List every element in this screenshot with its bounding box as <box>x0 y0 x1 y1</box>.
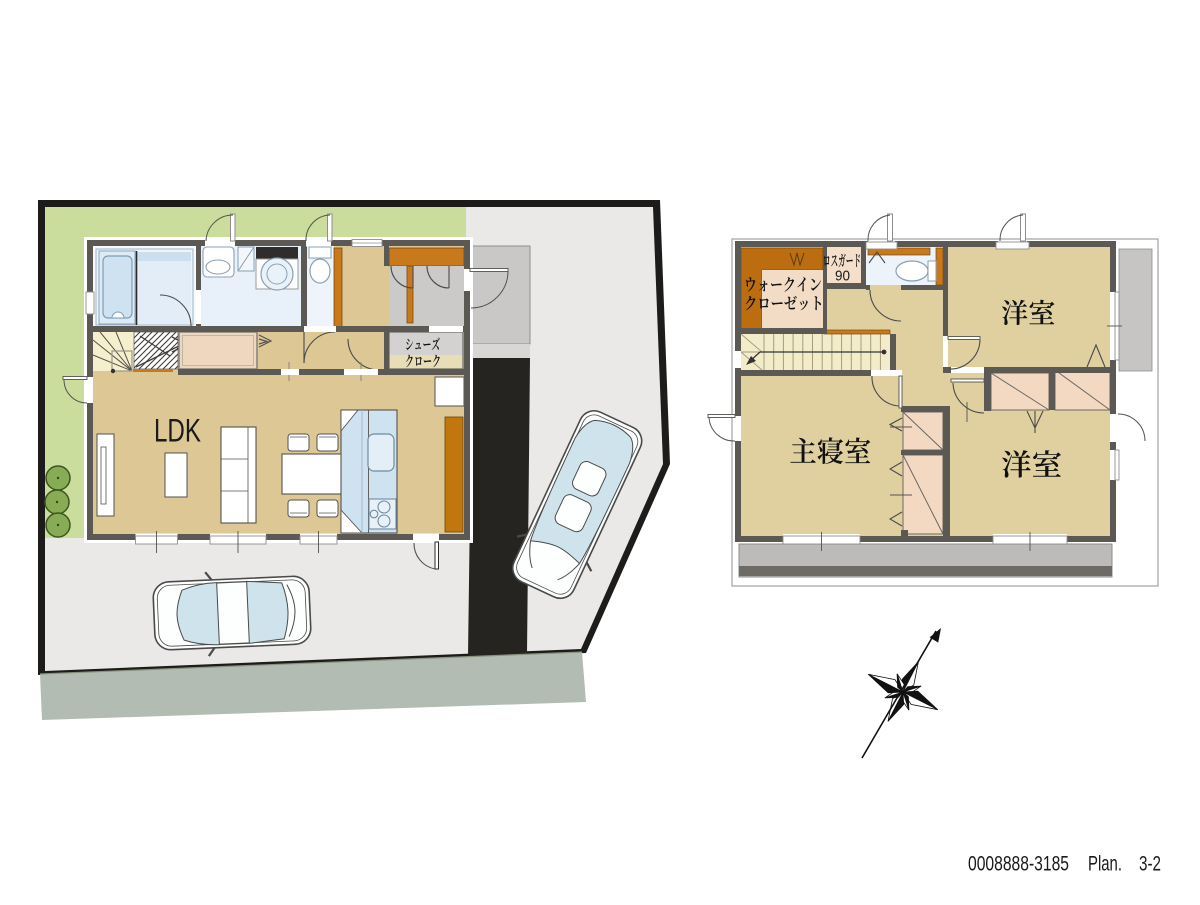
svg-text:LDK: LDK <box>154 413 201 449</box>
svg-text:90: 90 <box>835 268 850 285</box>
svg-text:0008888-3185: 0008888-3185 <box>968 853 1069 876</box>
svg-text:Plan.: Plan. <box>1088 853 1122 876</box>
svg-text:3-2: 3-2 <box>1139 853 1161 876</box>
